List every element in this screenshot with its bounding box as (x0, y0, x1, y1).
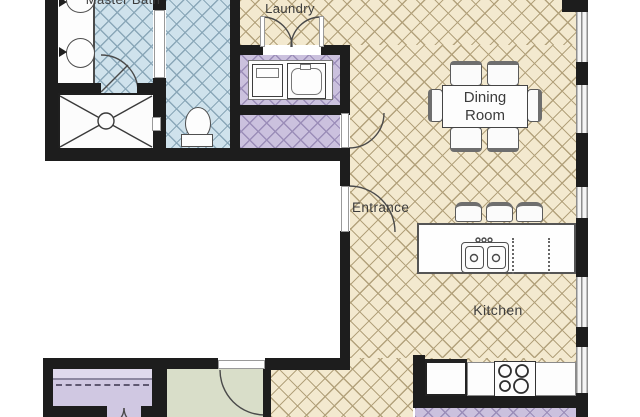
wall-segment (576, 327, 588, 347)
floor-hallway (240, 115, 340, 148)
pocket-door-icon (154, 10, 165, 78)
window-symbol (576, 187, 588, 218)
wall-segment (263, 367, 271, 417)
wall-segment (340, 161, 350, 186)
dryer-door-icon (291, 68, 322, 95)
dining-chair-icon (428, 89, 443, 122)
door-leaf-icon (341, 113, 349, 148)
floor-exterior-strip (415, 408, 576, 417)
laundry-label: Laundry (250, 1, 330, 16)
closet-shelf-icon (53, 369, 152, 380)
wall-segment (340, 231, 350, 358)
kitchen-label: Kitchen (458, 302, 538, 318)
wall-segment (576, 62, 588, 85)
sink-basin-icon (487, 246, 506, 269)
dining-room-label: Dining Room (443, 89, 527, 125)
wall-segment (230, 0, 240, 150)
wall-segment (137, 83, 154, 93)
refrigerator-icon (425, 359, 467, 396)
door-leaf-icon (218, 360, 265, 369)
shower-pan-icon (58, 93, 155, 150)
floorplan-canvas: Dining Room (0, 0, 640, 417)
dining-chair-icon (527, 89, 542, 122)
wall-segment (562, 0, 588, 12)
dining-chair-icon (450, 127, 482, 152)
wall-segment (45, 0, 58, 148)
dining-table: Dining Room (442, 85, 528, 128)
window-symbol (576, 12, 588, 62)
floor-master-bath (95, 0, 153, 93)
entrance-label: Entrance (352, 200, 436, 215)
bar-stool-icon (516, 202, 543, 222)
dining-chair-icon (450, 61, 482, 86)
wall-segment (413, 396, 578, 408)
dining-chair-icon (487, 127, 519, 152)
dining-chair-icon (487, 61, 519, 86)
shower-wall-notch (152, 117, 161, 131)
wall-segment (152, 367, 167, 417)
wall-segment (45, 358, 218, 369)
window-symbol (576, 347, 588, 393)
floor-utility-room (166, 367, 263, 417)
faucet-icon (59, 47, 67, 57)
window-symbol (576, 277, 588, 327)
cooktop-icon (494, 361, 536, 397)
door-leaf-icon (260, 16, 265, 47)
wall-segment (58, 83, 101, 93)
toilet-tank-icon (181, 134, 213, 147)
dryer-control-icon (300, 64, 311, 70)
wall-segment (340, 45, 350, 113)
wall-segment (576, 133, 588, 187)
faucet-icon (59, 0, 67, 7)
wall-segment (576, 393, 588, 417)
closet-rod-icon (56, 384, 149, 386)
wall-segment (265, 358, 350, 370)
wall-segment (153, 78, 166, 150)
bar-stool-icon (486, 202, 513, 222)
door-leaf-icon (319, 16, 324, 47)
sink-basin-icon (465, 246, 484, 269)
wall-segment (576, 218, 588, 277)
wall-segment (413, 355, 425, 400)
entrance-door-icon (341, 186, 349, 232)
wall-segment (43, 406, 107, 417)
wall-segment (230, 105, 350, 115)
master-bath-label: Master Bath (78, 0, 168, 7)
dishwasher-icon (512, 238, 550, 274)
washer-lid-icon (256, 68, 279, 78)
window-symbol (576, 85, 588, 133)
wall-segment (230, 45, 263, 55)
vanity-sink-icon (66, 38, 95, 68)
bar-stool-icon (455, 202, 482, 222)
wall-segment (45, 148, 350, 161)
